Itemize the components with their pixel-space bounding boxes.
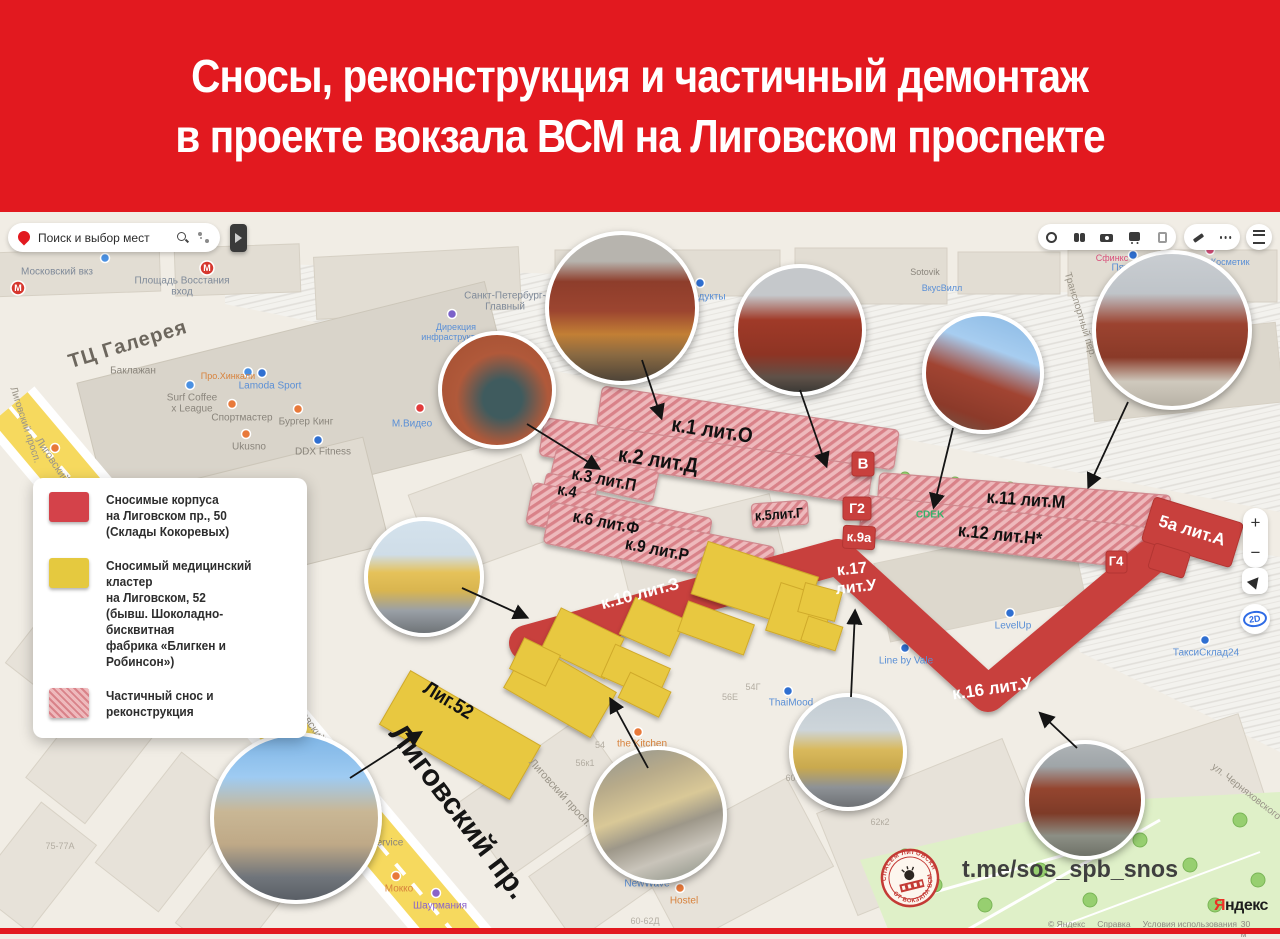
photo-aerial-courtyard — [589, 746, 727, 884]
zoom-in-button[interactable]: + — [1251, 513, 1261, 533]
locate-button[interactable] — [1242, 568, 1268, 594]
telegram-handle[interactable]: t.me/sos_spb_snos — [962, 856, 1178, 884]
transport-icon[interactable] — [1128, 231, 1141, 244]
locate-arrow-icon — [1247, 573, 1263, 589]
2d-label: 2D — [1242, 609, 1268, 628]
yandex-logo: Яндекс — [1214, 897, 1268, 915]
photo-red-building-autumn — [545, 231, 699, 385]
photo-brick-blue-sky — [922, 312, 1044, 434]
search-bar[interactable]: Поиск и выбор мест — [8, 223, 220, 252]
photo-brick-alley — [1025, 740, 1145, 860]
map-tools-toolbar — [1038, 224, 1176, 250]
ruler-icon[interactable] — [1192, 231, 1205, 244]
legend-swatch-yellow — [49, 558, 89, 588]
zoom-out-button[interactable]: − — [1251, 543, 1261, 563]
legend-swatch-red — [49, 492, 89, 522]
routes-icon[interactable] — [197, 231, 210, 244]
more-icon[interactable] — [1220, 231, 1233, 244]
hamburger-icon — [1253, 230, 1265, 244]
photo-yellow-street — [789, 693, 907, 811]
title-line-2: в проекте вокзала ВСМ на Лиговском просп… — [175, 106, 1104, 166]
photo-mural-wall — [438, 331, 556, 449]
legend-text: Сносимый медицинский кластерна Лиговском… — [106, 558, 286, 670]
search-icon[interactable] — [177, 232, 189, 244]
edit-tools-toolbar — [1184, 224, 1240, 250]
legend-panel: Сносимые корпусана Лиговском пр., 50(Скл… — [33, 478, 307, 738]
legend-swatch-hatched — [49, 688, 89, 718]
legend-item: Сносимые корпусана Лиговском пр., 50(Скл… — [49, 492, 295, 540]
title-line-1: Сносы, реконструкция и частичный демонта… — [192, 46, 1089, 106]
bottom-red-strip — [0, 928, 1280, 934]
legend-text: Сносимые корпусана Лиговском пр., 50(Скл… — [106, 492, 229, 540]
menu-button[interactable] — [1246, 224, 1272, 250]
zoom-control: + − — [1243, 508, 1268, 568]
photo-modern-block — [210, 732, 382, 904]
view-2d-button[interactable]: 2D — [1240, 604, 1270, 634]
legend-text: Частичный снос и реконструкция — [106, 688, 286, 720]
photo-red-brick-facade — [734, 264, 866, 396]
streetview-toggle-button[interactable] — [230, 224, 247, 252]
photo-yellow-classic — [364, 517, 484, 637]
bookmarks-icon[interactable] — [1156, 231, 1169, 244]
search-input[interactable]: Поиск и выбор мест — [38, 231, 173, 245]
title-banner: Сносы, реконструкция и частичный демонта… — [0, 0, 1280, 212]
map-pin-icon — [17, 231, 31, 245]
photo-brick-station — [1092, 250, 1252, 410]
camera-icon[interactable] — [1100, 231, 1113, 244]
mirrors-icon[interactable] — [1073, 231, 1086, 244]
legend-item: Сносимый медицинский кластерна Лиговском… — [49, 558, 295, 670]
panorama-icon[interactable] — [1045, 231, 1058, 244]
legend-item: Частичный снос и реконструкция — [49, 688, 295, 720]
